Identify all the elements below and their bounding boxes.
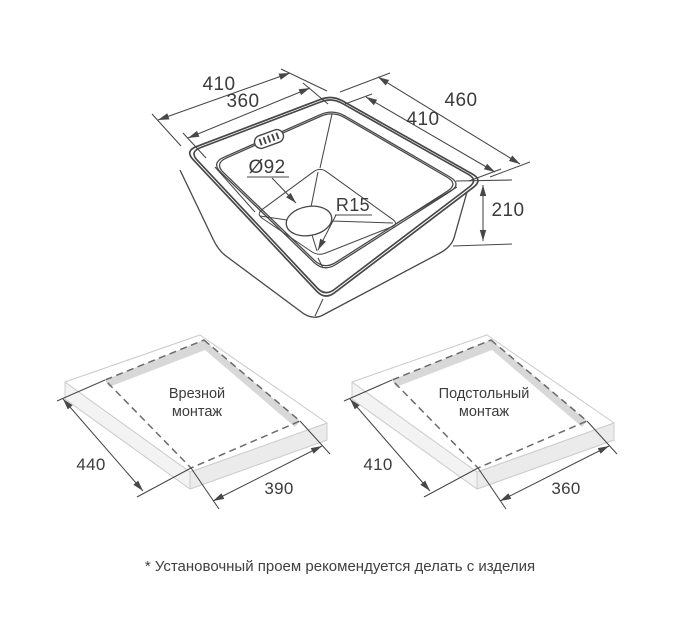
mount-right-title-line2: монтаж bbox=[459, 404, 510, 420]
mount-right-dim-side-label: 410 bbox=[363, 455, 392, 474]
footnote-text: * Установочный проем рекомендуется делат… bbox=[145, 558, 535, 575]
mount-left-dim-front-label: 390 bbox=[264, 479, 293, 498]
mount-right-dim-front-label: 360 bbox=[551, 479, 580, 498]
dim-label-height: 210 bbox=[492, 200, 525, 221]
mount-left-dim-side-label: 440 bbox=[76, 455, 105, 474]
overflow-slot-icon bbox=[253, 128, 286, 150]
dim-extension-lines-width bbox=[152, 69, 328, 158]
sink-bowl-opening-inner-edge bbox=[220, 114, 453, 266]
dim-label-inner-depth: 410 bbox=[407, 109, 440, 130]
technical-drawing-canvas: 410 360 460 410 210 Ø92 R15 bbox=[0, 0, 680, 630]
mount-left-title-line1: Врезной bbox=[169, 386, 225, 402]
sink-bowl-opening-edge bbox=[217, 112, 456, 268]
sink-isometric-view: 410 360 460 410 210 Ø92 R15 bbox=[152, 69, 530, 317]
dim-label-drain-diameter: Ø92 bbox=[248, 157, 285, 178]
mount-left-title-line2: монтаж bbox=[172, 404, 223, 420]
mount-right-title-line1: Подстольный bbox=[439, 386, 530, 402]
dim-label-outer-depth: 460 bbox=[445, 90, 478, 111]
dim-label-inner-width: 360 bbox=[227, 91, 260, 112]
sink-body-front-crease bbox=[315, 299, 323, 316]
dim-label-corner-radius: R15 bbox=[336, 195, 370, 215]
sink-dimension-drawing: 410 360 460 410 210 Ø92 R15 bbox=[0, 0, 680, 630]
sink-bowl-wall-creases bbox=[215, 114, 457, 268]
